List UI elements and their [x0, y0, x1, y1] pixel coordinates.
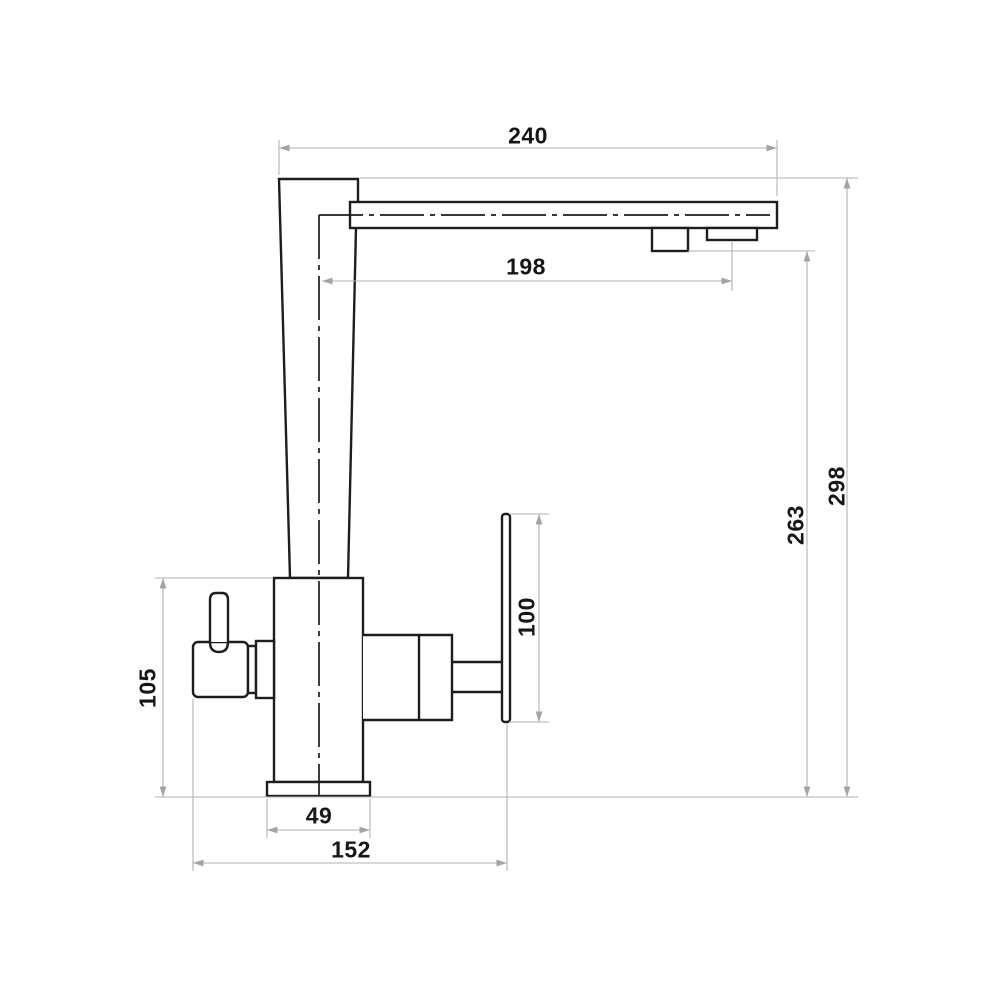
- dim-label-base-width: 49: [306, 805, 333, 828]
- dimension-lines: [155, 140, 858, 871]
- side-valve-lever: [210, 593, 228, 642]
- dim-label-overall-width: 152: [331, 839, 371, 862]
- drawing-svg: [0, 0, 1000, 1001]
- dim-label-overall-height: 298: [826, 466, 849, 506]
- side-valve-flange: [256, 641, 274, 698]
- handle-plate: [502, 514, 510, 722]
- faucet-technical-drawing: 240 198 298 263 100 105 49 152: [0, 0, 1000, 1001]
- dim-label-aerator-height: 263: [785, 505, 808, 545]
- faucet-outline: [193, 179, 777, 796]
- spout-diverter-block: [652, 228, 688, 251]
- dim-label-spout-reach: 198: [506, 256, 546, 279]
- spout-aerator-block: [707, 228, 757, 240]
- dim-label-handle-plate-height: 100: [516, 597, 539, 637]
- dim-label-body-height: 105: [137, 668, 160, 708]
- dim-label-spout-length: 240: [508, 125, 548, 148]
- side-valve-body: [193, 642, 248, 697]
- cartridge-housing: [363, 635, 452, 720]
